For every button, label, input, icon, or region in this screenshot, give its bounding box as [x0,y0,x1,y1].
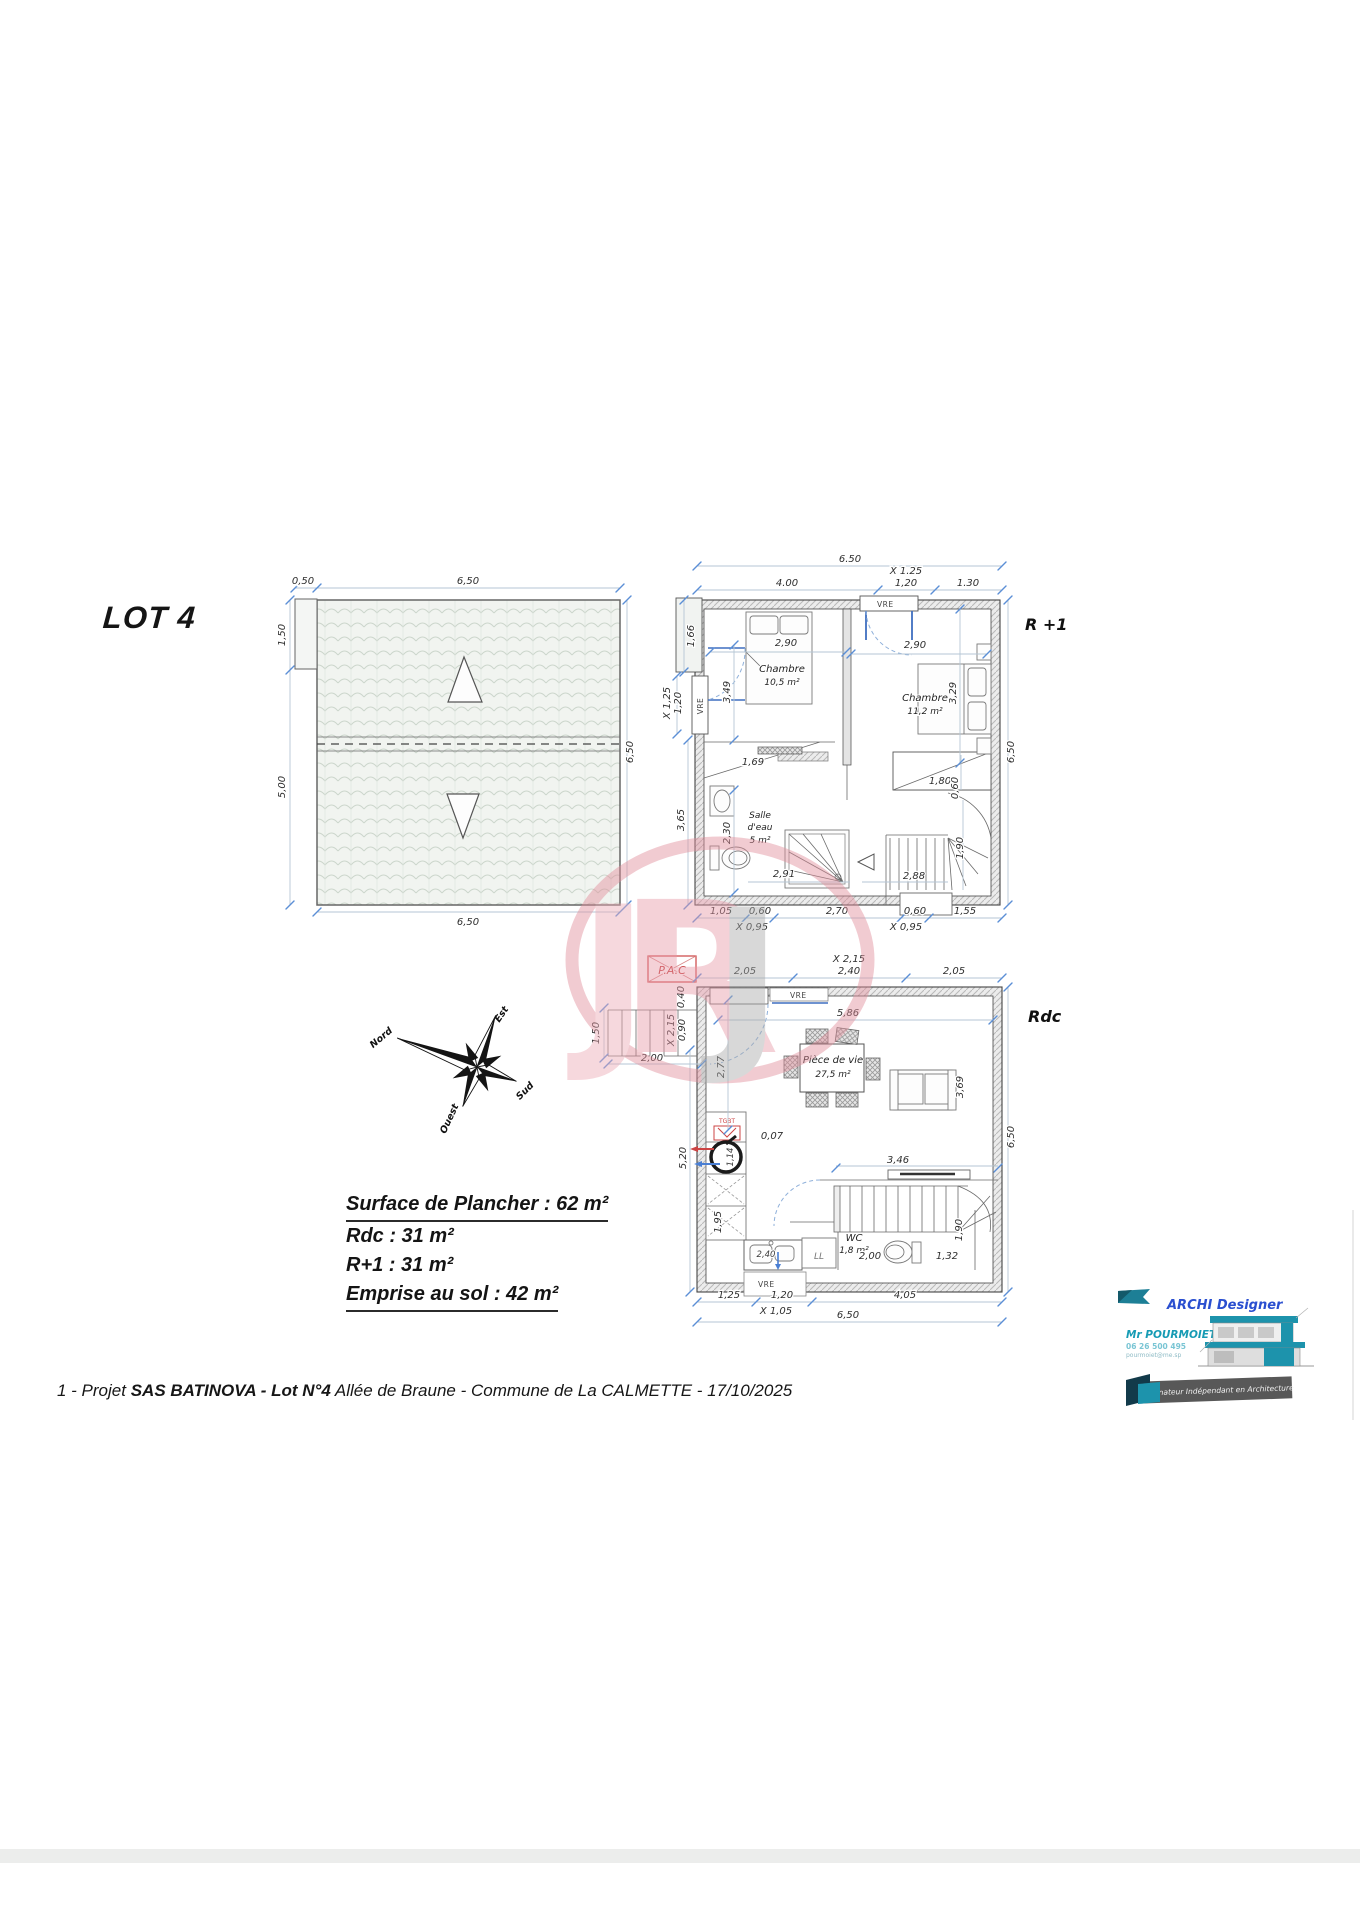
window-label-vre: VRE [758,1280,775,1289]
compass-west-label: Ouest [438,1102,461,1136]
dim-label: 1,20 [771,1290,793,1301]
compass-south-label: Sud [514,1080,536,1102]
dim-label: X 1.25 [889,566,922,577]
dim-label: 3,49 [722,681,733,703]
dim-label: 2,90 [904,640,926,651]
dim-label: 0,60 [950,777,961,799]
footer-prefix: 1 - Projet [57,1381,131,1400]
dim-label: 1,80 [929,776,951,787]
dim-label: X 2,15 [832,954,865,965]
room-label-chambre1: Chambre [759,664,805,675]
email-address: pourmoiet@me.sp [1126,1352,1181,1359]
dim-label: X 1,05 [759,1306,792,1317]
dim-label: 2,05 [943,966,965,977]
dim-label: 1,20 [673,692,684,714]
dim-label: 1,50 [277,624,288,646]
window-label-vre: VRE [877,600,894,609]
dim-label: 1,55 [954,906,976,917]
dim-label: 3,65 [676,809,687,831]
room-area-piece-de-vie: 27,5 m² [815,1070,851,1080]
room-area-chambre2: 11,2 m² [907,707,943,717]
floor-label-rdc: Rdc [1028,1007,1062,1026]
footer-location: Allée de Braune - Commune de La CALMETTE… [331,1381,792,1400]
surface-rdc: Rdc : 31 m² [346,1225,454,1247]
bed-chambre-1 [746,612,812,704]
dim-label: 1,69 [742,757,764,768]
scan-artifact [0,1849,1360,1863]
dim-label: 6,50 [457,917,479,928]
dim-label: 2,00 [859,1251,881,1262]
phone-number: 06 26 500 495 [1126,1342,1186,1351]
dim-label: 1,14 [726,1148,736,1167]
dim-label: 1,90 [955,837,966,859]
floor-label-r1: R +1 [1025,615,1067,634]
surface-emprise: Emprise au sol : 42 m² [346,1280,558,1312]
dim-label: 1.30 [957,578,979,589]
dim-label: 2,90 [775,638,797,649]
dim-label: 0,07 [761,1131,784,1142]
dim-label: X 1,25 [662,687,673,720]
dim-label: 3,69 [955,1076,966,1098]
archi-designer-logo: ARCHI Designer Mr POURMOIET 06 26 500 49… [1118,1289,1314,1406]
dim-label: 1,95 [713,1211,724,1233]
dim-label: 1,66 [686,625,697,647]
dim-label: 6,50 [457,576,479,587]
tgbt-label: TGBT [718,1118,735,1125]
house-illustration [1198,1308,1314,1366]
room-area-chambre1: 10,5 m² [764,678,800,688]
dim-label: 6,50 [1006,1126,1017,1148]
room-label-chambre2: Chambre [902,693,948,704]
title-block-caption: 1 - Projet SAS BATINOVA - Lot N°4 Allée … [57,1381,792,1401]
dim-label: 1,32 [936,1251,958,1262]
window-label-vre: VRE [790,991,807,1000]
dim-label: 1,90 [954,1219,965,1241]
tagline-banner: Dessinateur Indépendant en Architecture [1138,1376,1294,1403]
watermark-letter: J [701,869,783,1090]
dim-label: 1,25 [718,1290,740,1301]
dim-label: 5,20 [678,1147,689,1169]
sofa [890,1070,956,1110]
brand-name: ARCHI Designer [1166,1298,1284,1313]
room-label-wc: WC [846,1233,863,1244]
room-label-salle-deau: d'eau [748,823,773,833]
compass-east-label: Est [493,1004,512,1024]
cube-icon [1126,1374,1160,1406]
washing-machine-label: LL [814,1252,824,1262]
dim-label: 5,00 [277,776,288,798]
dim-label: 0,50 [292,576,314,587]
surface-total: Surface de Plancher : 62 m² [346,1190,608,1222]
compass-north-label: Nord [368,1025,395,1050]
dim-label: 4,05 [894,1290,916,1301]
dim-label: 3,29 [948,682,959,704]
dim-label: 6,50 [1006,741,1017,763]
surface-r1: R+1 : 31 m² [346,1254,453,1276]
scanned-plan-page: LOT 4 0,50 6,50 1,50 5,00 6,50 6,50 [0,0,1360,1924]
room-label-salle-deau: Salle [749,811,771,821]
dim-label: 2,40 [838,966,860,977]
dim-label: 3,46 [887,1155,909,1166]
dim-label: 4.00 [776,578,798,589]
window-label-vre: VRE [696,698,705,715]
footer-project: SAS BATINOVA - Lot N°4 [131,1381,331,1400]
dim-label: 6,50 [625,741,636,763]
dim-label: 2,40 [757,1250,776,1260]
dim-label: 2,88 [903,871,925,882]
designer-name: Mr POURMOIET [1126,1329,1217,1341]
dim-label: 6,50 [837,1310,859,1321]
dim-label: 0,60 [904,906,926,917]
surface-summary: Surface de Plancher : 62 m² Rdc : 31 m² … [346,1190,608,1312]
plan-drawing: 0,50 6,50 1,50 5,00 6,50 6,50 [0,0,1360,1924]
dim-label: 6.50 [839,554,861,565]
compass-rose: Nord Est Ouest Sud [368,986,537,1135]
dim-label: 1,20 [895,578,917,589]
dim-label: X 0,95 [889,922,922,933]
